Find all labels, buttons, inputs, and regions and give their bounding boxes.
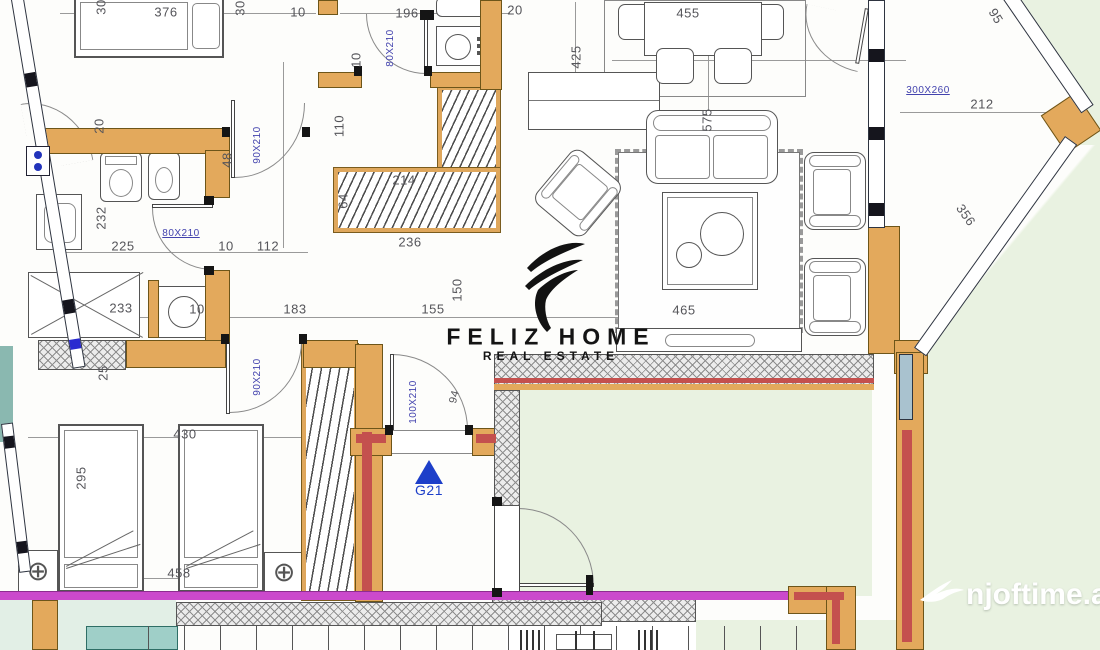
floor-plan: njoftime.al FELIZ HOME REAL ESTATE <box>0 0 1100 650</box>
armchair-arm <box>809 215 861 227</box>
dim-20: 20 <box>507 4 522 17</box>
bedroom2-door-leaf <box>226 338 230 414</box>
door-hinge <box>420 10 434 20</box>
neighbor-table <box>556 634 612 650</box>
brand-title: FELIZ HOME <box>446 324 655 351</box>
entry-marker-label: G21 <box>415 483 443 497</box>
neighbor-radiator <box>638 630 662 650</box>
dim-155: 155 <box>421 303 444 316</box>
door-tag-80x210: 80X210 <box>162 229 199 239</box>
armchair-arm <box>809 155 861 167</box>
armchair-seat <box>813 275 851 321</box>
window-hinge-mark <box>869 127 884 140</box>
dim-10: 10 <box>290 6 305 19</box>
party-wall-red-line <box>494 378 874 383</box>
bathroom1-door-arc <box>152 208 213 270</box>
wall-neighbor-corner-b-core <box>832 596 840 644</box>
bed-mattress <box>64 430 138 558</box>
wall-bed2-top-b <box>303 340 358 368</box>
door-jamb <box>424 66 432 76</box>
window-hinge-mark <box>62 299 75 315</box>
door-tag-80x210: 80X210 <box>386 29 396 66</box>
wall-entry-right-core <box>476 434 496 443</box>
window-tag-300x260: 300X260 <box>906 86 950 96</box>
party-wall-vertical <box>494 390 520 506</box>
dim-376: 376 <box>154 6 177 19</box>
toilet <box>100 152 142 202</box>
dining-chair <box>714 48 752 84</box>
wall-bath1-top <box>40 128 230 154</box>
window-hinge-mark <box>869 203 884 216</box>
dim-10: 10 <box>350 52 363 67</box>
door-jamb <box>204 266 214 275</box>
armchair <box>804 258 866 336</box>
kitchen-counter <box>528 72 660 130</box>
dim-48: 48 <box>221 152 234 167</box>
door-jamb <box>221 334 229 344</box>
brand-logo-swoosh <box>515 238 587 334</box>
site-watermark: njoftime.al <box>918 578 1100 612</box>
balcony-wall-bottom <box>176 602 602 626</box>
sofa-cushion <box>713 135 768 179</box>
door-jamb <box>385 425 393 435</box>
wall-bath1-right-lower <box>205 270 230 342</box>
window-bay-inner <box>868 0 885 228</box>
party-wall-tan-line <box>494 384 874 390</box>
brand-subtitle: REAL ESTATE <box>483 349 619 363</box>
entry-threshold <box>392 430 472 454</box>
wall-entry-left-core <box>356 434 386 443</box>
window-hinge-mark <box>4 436 15 449</box>
dim-183: 183 <box>283 303 306 316</box>
site-watermark-text: njoftime.al <box>966 578 1100 611</box>
door-jamb <box>299 334 307 344</box>
window-hinge-mark <box>24 72 37 88</box>
door-tag-90x210: 90X210 <box>253 358 263 395</box>
dim-214: 214 <box>392 174 415 187</box>
wall-bed2-right-core <box>362 432 372 594</box>
dim-20: 20 <box>93 118 106 133</box>
dim-64: 64 <box>337 193 350 208</box>
wall-kitchen-left <box>480 0 502 90</box>
dim-575: 575 <box>701 108 714 131</box>
dim-10: 10 <box>189 303 204 316</box>
dim-112: 112 <box>257 240 279 253</box>
dim-25: 25 <box>97 365 110 380</box>
dim-236: 236 <box>398 236 421 249</box>
dining-chair <box>656 48 694 84</box>
balcony-line <box>0 591 788 600</box>
bedroom1-door-arc <box>235 103 305 178</box>
wall-bed2-top-a <box>126 340 226 368</box>
window-hinge-mark <box>869 49 884 62</box>
armchair-seat <box>813 169 851 215</box>
window-hinge-mark <box>16 541 27 554</box>
door-jamb <box>222 127 230 137</box>
bed-pillow <box>192 3 220 49</box>
bidet-bowl <box>155 167 173 193</box>
wardrobe-bedroom2 <box>302 344 358 600</box>
door-tag-100x210: 100X210 <box>409 380 419 424</box>
nightstand: ⊕ <box>264 552 304 592</box>
wall-balcony-left-strip <box>32 600 58 650</box>
bathroom2-door-arc <box>366 14 426 74</box>
dim-line <box>900 112 1048 113</box>
armchair-arm <box>809 261 861 273</box>
dim-233: 233 <box>109 302 132 315</box>
bedroom2-door-arc <box>230 341 302 413</box>
door-tag-90x210: 90X210 <box>253 126 263 163</box>
decor-circle-small <box>676 242 702 268</box>
neighbor-door-handle <box>586 575 593 595</box>
single-bed <box>58 424 144 592</box>
dim-196: 196 <box>395 7 418 20</box>
bathroom2-door-leaf <box>424 14 428 74</box>
dim-430: 430 <box>173 428 196 441</box>
dim-295: 295 <box>75 466 88 489</box>
bidet <box>148 152 180 200</box>
armchair-arm <box>809 321 861 333</box>
toilet-bowl <box>109 169 133 197</box>
dim-10: 10 <box>218 240 233 253</box>
dim-30: 30 <box>234 0 247 15</box>
door-jamb <box>302 127 310 137</box>
bed-mattress <box>184 430 258 558</box>
single-bed <box>178 424 264 592</box>
table-bar <box>575 631 595 650</box>
armchair <box>804 152 866 230</box>
tv <box>665 334 755 347</box>
dim-150: 150 <box>451 278 464 301</box>
dim-458: 458 <box>167 567 190 580</box>
door-jamb <box>492 588 502 597</box>
neighbor-door-leaf <box>518 583 594 587</box>
bed-blanket <box>64 564 138 588</box>
wall-bath2-left-upper <box>318 0 338 15</box>
window-left-lower <box>1 423 31 573</box>
window-hinge-mark <box>69 338 81 350</box>
balcony-railing <box>148 626 860 650</box>
accessory-dot <box>34 163 42 171</box>
dim-110: 110 <box>333 115 346 137</box>
accessory-dot <box>34 151 42 159</box>
armchair-diagonal <box>531 146 625 241</box>
door-jamb <box>492 497 502 506</box>
neighbor-radiator <box>520 630 544 650</box>
door-jamb <box>465 425 473 435</box>
dim-232: 232 <box>95 206 108 229</box>
toilet-tank <box>105 156 137 165</box>
dim-455: 455 <box>676 7 699 20</box>
sofa-cushion <box>655 135 710 179</box>
washer-drum <box>445 34 471 60</box>
counter-divider <box>529 100 659 101</box>
dim-425: 425 <box>570 45 583 68</box>
entry-door-leaf <box>390 354 394 430</box>
dim-225: 225 <box>111 240 134 253</box>
wall-living-right <box>868 226 900 354</box>
neighbor-door-strip <box>494 506 520 596</box>
dim-212: 212 <box>970 98 993 111</box>
decor-circle-large <box>700 212 744 256</box>
wardrobe-hall-horizontal <box>334 168 500 232</box>
dim-95: 95 <box>986 6 1005 26</box>
bird-icon <box>918 578 966 608</box>
wall-right-core <box>902 430 912 642</box>
wall-accessory <box>26 146 50 176</box>
entry-marker-icon <box>415 460 443 484</box>
bed-blanket <box>184 564 258 588</box>
wall-washer-nook <box>148 280 159 338</box>
dim-30: 30 <box>95 0 108 15</box>
dim-465: 465 <box>672 304 695 317</box>
door-jamb <box>204 196 214 205</box>
right-wall-window <box>899 354 913 420</box>
